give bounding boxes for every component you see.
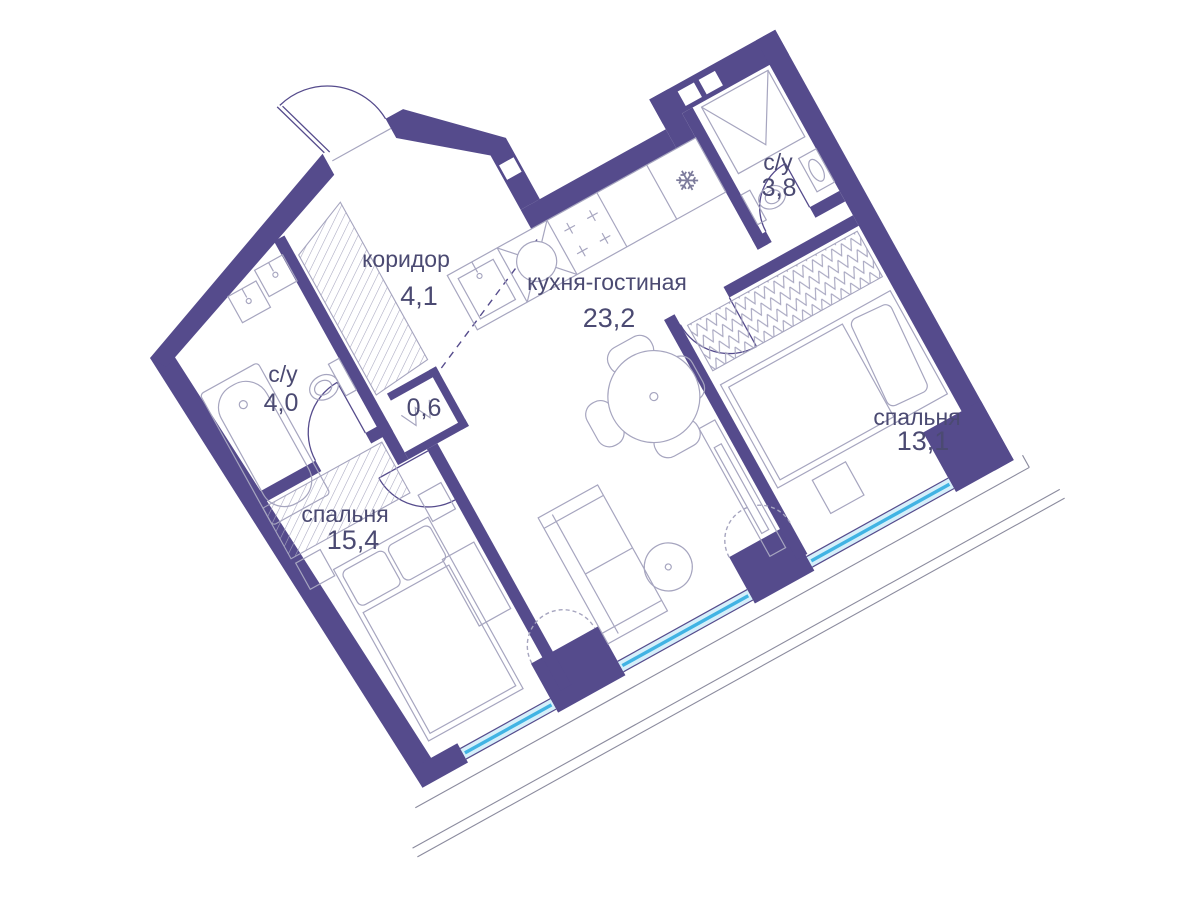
pouf — [636, 534, 701, 599]
sink-tap — [242, 289, 247, 298]
toilet-seat — [312, 377, 335, 398]
sink-tap — [269, 263, 274, 272]
entrance-door — [276, 62, 391, 172]
window-2 — [618, 590, 753, 672]
sofa — [538, 485, 667, 644]
room-area-bathroom-guest: 3,8 — [762, 174, 797, 202]
fridge-snowflake-icon: ❄ — [668, 160, 707, 203]
sofa-armrest — [544, 495, 603, 528]
kitchen-sink-icon — [454, 252, 515, 319]
window-1 — [460, 699, 556, 759]
facade-pillar-2 — [729, 524, 814, 603]
room-area-hallway: 4,1 — [400, 281, 438, 311]
counter-divider — [597, 193, 627, 247]
table-top — [591, 334, 716, 459]
balcony-slab-line — [413, 489, 1060, 848]
sofa-cushion-split — [585, 548, 632, 574]
window-frame-line — [466, 709, 556, 759]
balcony-outline — [389, 447, 1064, 856]
window-sash-line — [811, 484, 949, 561]
pouf-center — [664, 563, 672, 571]
floor-plan-svg: ❄ — [0, 0, 1200, 902]
room-label-bedroom-1: спальня — [301, 501, 388, 527]
room-label-hallway: коридор — [362, 246, 450, 272]
pillow — [386, 524, 447, 582]
window-3 — [807, 478, 955, 567]
window-frame-line — [807, 478, 949, 557]
balcony-end-line — [1023, 455, 1030, 467]
room-label-bathroom-guest: с/у — [763, 149, 793, 175]
wall-entrance-chamfer — [386, 72, 540, 245]
room-area-kitchen-living: 23,2 — [583, 303, 636, 333]
window-sash-line — [622, 596, 748, 666]
bathtub-drain — [238, 399, 249, 410]
entrance-threshold — [332, 128, 391, 160]
wardrobe-hangers — [688, 231, 883, 371]
sink-tap-dot — [272, 271, 279, 278]
wall-bathroom2-bottom-right — [810, 191, 846, 218]
room-area-bedroom-1: 15,4 — [327, 525, 380, 555]
wall-kitchen-top — [521, 129, 677, 229]
stove-icon — [562, 207, 614, 259]
entrance-door-arc — [279, 62, 386, 161]
window-frame-line — [812, 489, 954, 568]
wall-partition-bedroom1 — [427, 443, 571, 690]
window-frame-line — [618, 590, 747, 662]
room-label-bathroom-main: с/у — [268, 361, 298, 387]
floor-plan-page: ❄ — [0, 0, 1200, 902]
stove-burners — [562, 207, 614, 259]
pouf-outline — [636, 534, 701, 599]
room-area-bathroom-main: 4,0 — [264, 389, 299, 417]
room-area-bedroom-2: 13,1 — [897, 426, 950, 456]
nightstand — [812, 462, 864, 514]
kitchen-counter: ❄ — [447, 138, 725, 330]
sink-tap-dot — [245, 298, 252, 305]
sink-tap-dot — [476, 273, 483, 280]
window-frame-line — [460, 699, 550, 749]
sofa-back — [552, 515, 618, 634]
toilet-bowl — [305, 370, 343, 406]
room-area-niche: 0,6 — [407, 394, 442, 422]
dresser — [442, 542, 510, 626]
window-sash-line — [465, 705, 552, 753]
sofa-armrest — [602, 600, 661, 633]
room-label-kitchen-living: кухня-гостиная — [527, 269, 687, 295]
balcony-edge-line — [415, 467, 1029, 807]
